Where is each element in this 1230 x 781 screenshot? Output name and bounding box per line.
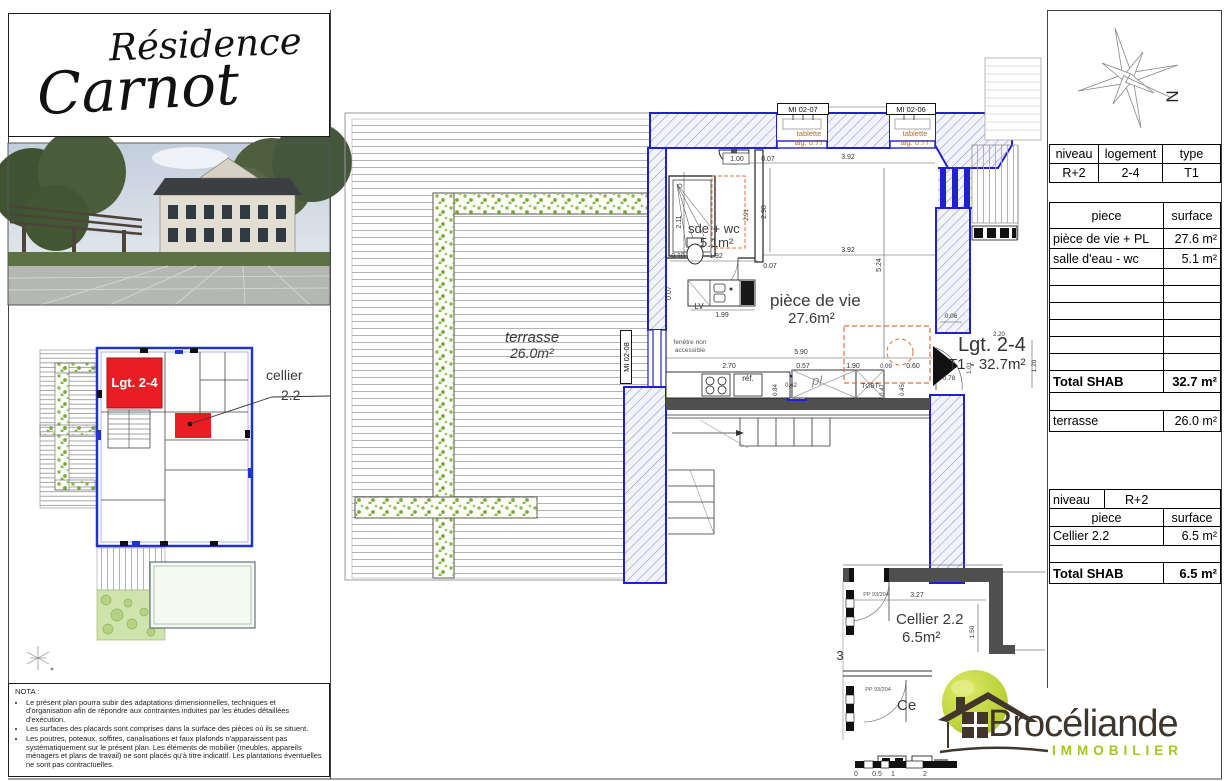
- key-plan-compass-icon: [27, 646, 53, 670]
- grid-number: 3: [836, 648, 843, 663]
- table-header-piece: piece: [1050, 203, 1164, 229]
- unit-type-area: T1 - 32.7m²: [948, 357, 1026, 372]
- dishwasher-label: LV: [694, 302, 704, 311]
- nota-item: Le présent plan pourra subir des adaptat…: [26, 699, 323, 725]
- floor-plan-sheet: 1.00 0.07 3.92 3.92 2.98 2.91 5.24 2.11 …: [0, 0, 1230, 781]
- door-tag: PP 93/204: [863, 592, 889, 598]
- logo-wordmark: Brocéliande: [988, 705, 1178, 743]
- niveau-value: R+2: [1105, 490, 1220, 509]
- table-row-label: [1050, 286, 1164, 303]
- window-tag-mi-02-08: MI 02-08: [620, 330, 632, 384]
- closet-pl: [792, 370, 856, 398]
- dim-label: 1.99: [715, 312, 729, 319]
- room-area-sde: 5.1m²: [700, 236, 733, 249]
- residence-title-line2: Carnot: [36, 55, 241, 124]
- closet-label: pl: [812, 374, 822, 387]
- table-cell-niveau: R+2: [1050, 164, 1099, 182]
- dim-label: 3.92: [841, 154, 855, 161]
- key-plan-cellier-label: cellier: [266, 368, 303, 382]
- spacer-row: [1050, 546, 1220, 563]
- kitchen-appliances: [666, 372, 790, 398]
- building-photo: [0, 122, 352, 305]
- key-plan-cellier-highlight: [175, 413, 211, 438]
- table-row-value: [1164, 269, 1220, 286]
- room-label-terrasse: terrasse: [505, 330, 559, 345]
- window-note-line2: accessible: [675, 347, 706, 354]
- dim-label: 1.50: [969, 625, 976, 638]
- table-row-label: pièce de vie + PL: [1050, 229, 1164, 249]
- room-label-sde: sde + wc: [688, 222, 740, 235]
- dim-label: 0.09: [880, 364, 892, 370]
- cellier-surfaces-table: piece surface Cellier 2.2 6.5 m² Total S…: [1049, 508, 1221, 584]
- table-header-surface: surface: [1164, 203, 1220, 229]
- table-row-label: [1050, 337, 1164, 354]
- dim-label: 0.45: [900, 384, 906, 396]
- scale-bar: [855, 761, 957, 768]
- table-header-cell: type: [1163, 145, 1220, 164]
- table-row-value: 5.1 m²: [1164, 249, 1220, 269]
- fridge-label: réf.: [742, 374, 754, 383]
- table-cell-logement: 2-4: [1099, 164, 1163, 182]
- dim-label: 5.24: [876, 258, 883, 272]
- window-mi-02-08: [648, 330, 666, 387]
- table-row-label: salle d'eau - wc: [1050, 249, 1164, 269]
- compass-rose: [1078, 28, 1178, 128]
- stairs: [666, 415, 930, 534]
- table-row-value: [1164, 337, 1220, 354]
- terrace: [345, 113, 660, 580]
- total-shab-label: Total SHAB: [1050, 371, 1164, 393]
- table-row-value: [1164, 320, 1220, 337]
- scale-1: 1: [891, 771, 895, 778]
- total-shab-value: 6.5 m²: [1164, 563, 1220, 583]
- key-plan-unit-label: Lgt. 2-4: [107, 376, 162, 389]
- nota-title: NOTA :: [15, 688, 323, 697]
- scale-0: 0: [854, 771, 858, 778]
- dim-label: 0.57: [796, 363, 810, 370]
- table-row-value: [1164, 354, 1220, 371]
- table-header-cell: niveau: [1050, 145, 1099, 164]
- dim-label: 0.10: [671, 253, 685, 260]
- table-row-label: [1050, 320, 1164, 337]
- nota-item: Les surfaces des placards sont comprises…: [26, 725, 323, 734]
- nota-block: NOTA : Le présent plan pourra subir des …: [8, 683, 330, 777]
- room-area-terrasse: 26.0m²: [510, 346, 554, 360]
- terrasse-row-value: 26.0 m²: [1164, 411, 1220, 431]
- table-header-surface: surface: [1164, 509, 1220, 527]
- spacer-row: [1050, 393, 1220, 411]
- north-letter: N: [1164, 90, 1181, 102]
- tablette-note-2: tablette alg. 0.77: [892, 130, 938, 147]
- room-area-cellier: 6.5m²: [902, 630, 940, 645]
- dim-label: 1.90: [846, 363, 860, 370]
- table-row-label: [1050, 354, 1164, 371]
- dim-label: 0.07: [763, 263, 777, 270]
- nota-item: Les poutres, poteaux, soffites, canalisa…: [26, 735, 323, 769]
- dim-label: 5.90: [794, 349, 808, 356]
- dim-label: 0.07: [761, 156, 775, 163]
- table-row-value: 6.5 m²: [1164, 527, 1220, 546]
- dim-label: 0.78: [943, 375, 956, 382]
- table-row-value: [1164, 303, 1220, 320]
- dim-label: 2.70: [722, 363, 736, 370]
- bay-mullions: [938, 168, 972, 208]
- table-header-piece: piece: [1050, 509, 1164, 527]
- dim-label: 0.07: [666, 286, 673, 300]
- window-tag-mi-02-06: MI 02-06: [886, 103, 936, 115]
- cellier-niveau-table: niveau R+2: [1049, 489, 1221, 509]
- dim-label: 1.20: [1031, 359, 1038, 372]
- scale-labels: 0 0.5 1 2: [854, 771, 927, 778]
- dim-label: 2.98: [761, 205, 768, 219]
- table-row-label: [1050, 303, 1164, 320]
- room-label-cellier: Cellier 2.2: [896, 612, 964, 627]
- tablette-line2: alg. 0.77: [786, 139, 832, 148]
- cellier-partial-label: Ce: [897, 698, 916, 713]
- dim-label: 2.91: [744, 209, 750, 221]
- tablette-line2: alg. 0.77: [892, 139, 938, 148]
- unit-label: Lgt. 2-4: [958, 335, 1026, 355]
- dim-label: 1.92: [709, 253, 723, 260]
- dim-label: 1.00: [730, 156, 744, 163]
- dim-label: 0.42: [785, 383, 797, 389]
- unit-summary-table: niveau logement type R+2 2-4 T1: [1049, 144, 1221, 183]
- dim-label: 0.60: [906, 363, 920, 370]
- title-block: Résidence Carnot: [8, 13, 330, 137]
- tablette-note-1: tablette alg. 0.77: [786, 130, 832, 147]
- dim-label: 0.06: [945, 313, 958, 320]
- table-row-value: 27.6 m²: [1164, 229, 1220, 249]
- neighbour-deck: [972, 58, 1041, 240]
- window-tag-mi-02-07: MI 02-07: [777, 103, 829, 115]
- room-label-piece-de-vie: pièce de vie: [770, 292, 861, 309]
- door-frame-marks: [846, 590, 854, 731]
- nota-list: Le présent plan pourra subir des adaptat…: [15, 699, 323, 770]
- room-area-piece-de-vie: 27.6m²: [788, 311, 835, 326]
- table-header-cell: logement: [1099, 145, 1163, 164]
- scale-2: 2: [923, 771, 927, 778]
- scale-05: 0.5: [872, 771, 882, 778]
- terrasse-row-label: terrasse: [1050, 411, 1164, 431]
- niveau-label: niveau: [1050, 490, 1105, 509]
- door-tag: PP 93/204: [865, 687, 891, 693]
- dim-label: 3.27: [910, 592, 924, 599]
- dim-label: 0.84: [773, 384, 779, 396]
- total-shab-label: Total SHAB: [1050, 563, 1164, 583]
- dim-label: 2.11: [676, 215, 683, 228]
- small-annotations: fenêtre non accessible LV réf. TGBT PP 9…: [674, 302, 891, 693]
- total-shab-value: 32.7 m²: [1164, 371, 1220, 393]
- dim-label: 0.47: [880, 384, 886, 396]
- logo-subtitle: IMMOBILIER: [1052, 744, 1183, 758]
- table-row-label: Cellier 2.2: [1050, 527, 1164, 546]
- dim-label: 3.92: [841, 247, 855, 254]
- table-cell-type: T1: [1163, 164, 1220, 182]
- tgbt-label: TGBT: [861, 383, 878, 390]
- surfaces-table: piece surface pièce de vie + PL 27.6 m² …: [1049, 202, 1221, 432]
- window-note-line1: fenêtre non: [674, 339, 707, 346]
- table-row-label: [1050, 269, 1164, 286]
- table-row-value: [1164, 286, 1220, 303]
- key-plan-cellier-number: 2.2: [281, 388, 300, 402]
